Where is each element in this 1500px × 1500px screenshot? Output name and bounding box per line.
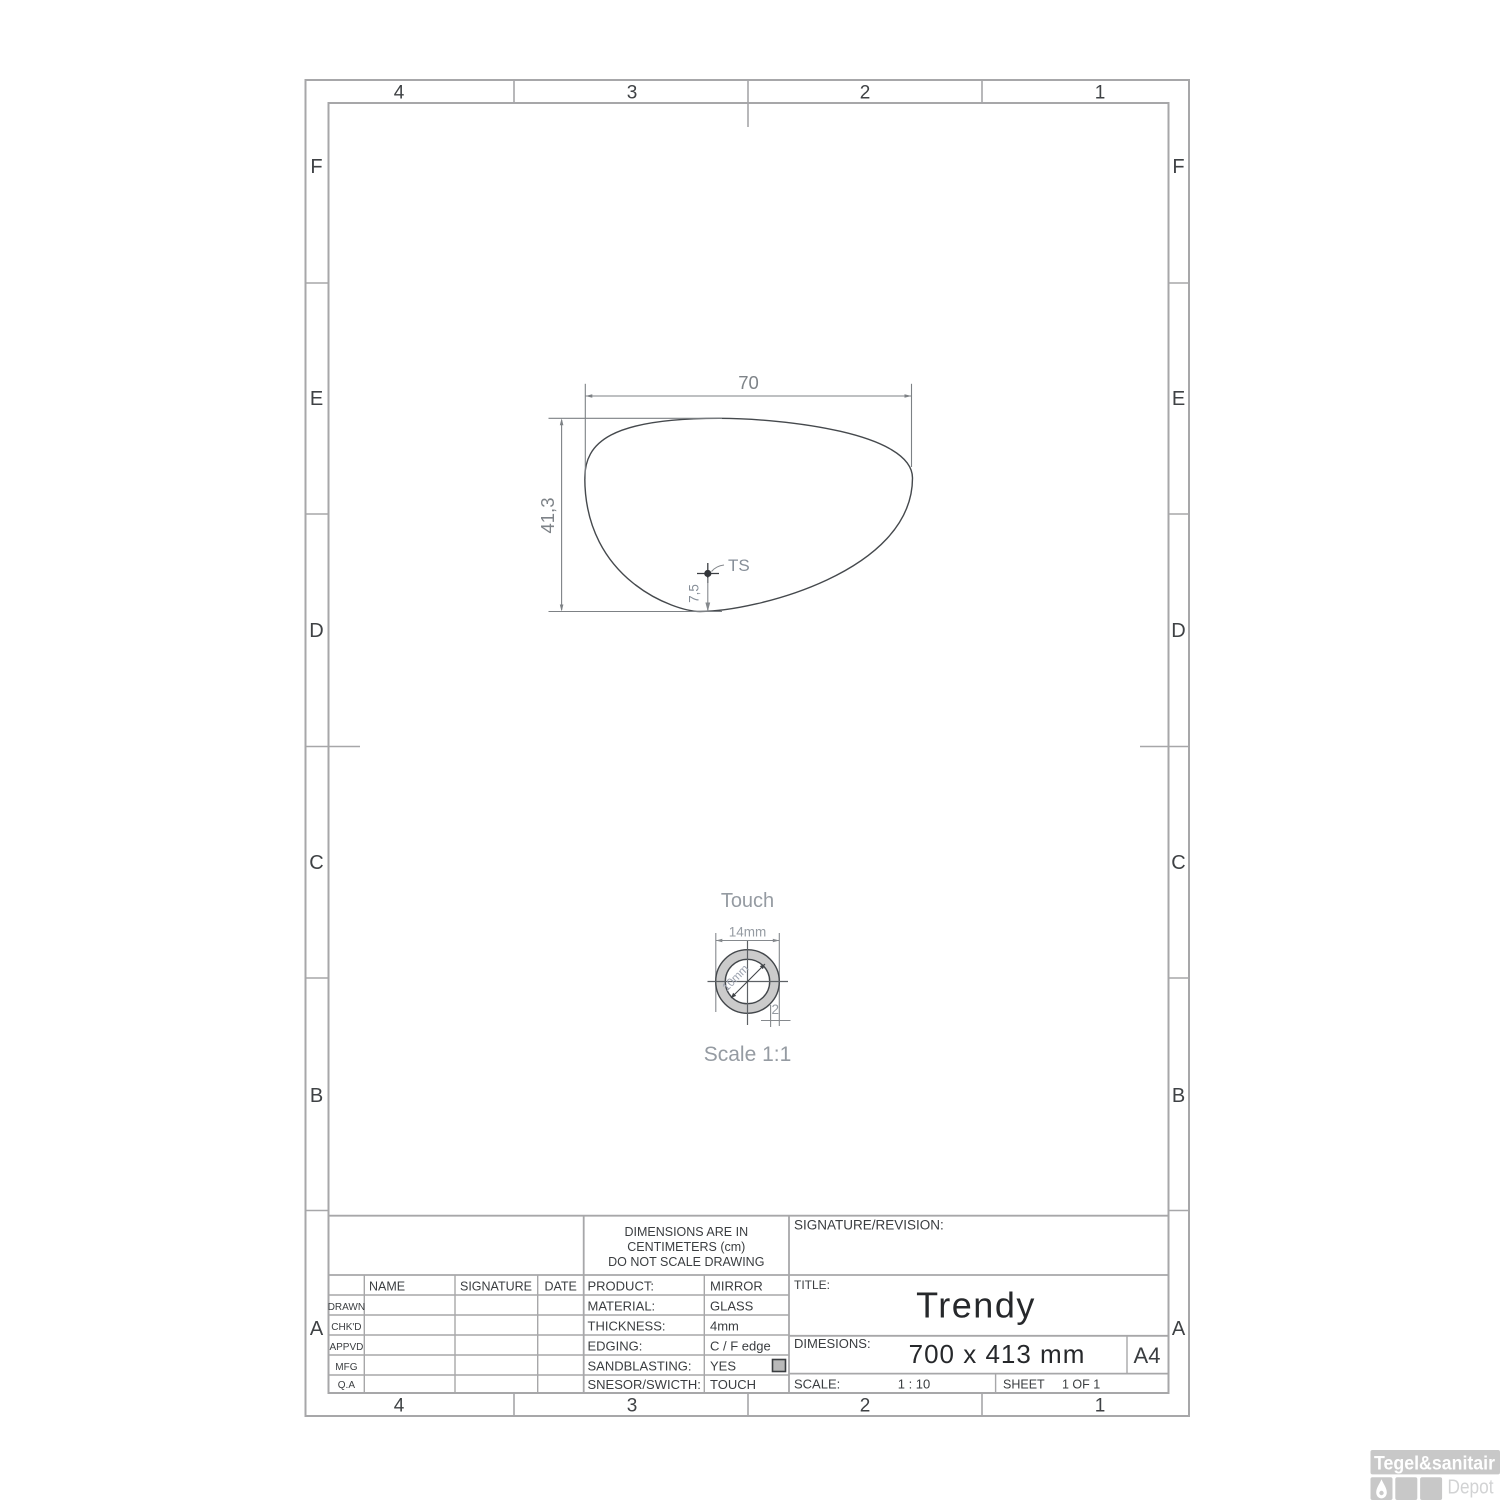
svg-text:F: F <box>1172 156 1184 178</box>
svg-text:Q.A: Q.A <box>338 1380 356 1391</box>
svg-text:TITLE:: TITLE: <box>794 1278 830 1292</box>
svg-text:7,5: 7,5 <box>687 584 702 603</box>
svg-text:SNESOR/SWICTH:: SNESOR/SWICTH: <box>588 1377 701 1392</box>
svg-text:1 OF 1: 1 OF 1 <box>1062 1378 1100 1392</box>
svg-text:C: C <box>309 852 323 874</box>
svg-text:TOUCH: TOUCH <box>710 1377 756 1392</box>
svg-text:C: C <box>1171 852 1185 874</box>
svg-text:B: B <box>310 1085 323 1107</box>
svg-text:DO NOT SCALE DRAWING: DO NOT SCALE DRAWING <box>608 1255 764 1269</box>
svg-text:SCALE:: SCALE: <box>794 1377 840 1392</box>
svg-text:YES: YES <box>710 1359 736 1374</box>
svg-text:D: D <box>1171 620 1185 642</box>
svg-text:MIRROR: MIRROR <box>710 1279 763 1294</box>
svg-text:1 : 10: 1 : 10 <box>898 1377 931 1392</box>
svg-text:GLASS: GLASS <box>710 1299 754 1314</box>
svg-text:THICKNESS:: THICKNESS: <box>588 1319 666 1334</box>
svg-text:SIGNATURE: SIGNATURE <box>460 1280 532 1294</box>
svg-text:CENTIMETERS (cm): CENTIMETERS (cm) <box>627 1240 745 1254</box>
svg-text:MATERIAL:: MATERIAL: <box>588 1299 656 1314</box>
svg-text:A: A <box>310 1318 324 1340</box>
svg-text:2: 2 <box>860 1396 871 1417</box>
svg-text:NAME: NAME <box>369 1280 405 1294</box>
svg-text:D: D <box>309 620 323 642</box>
svg-text:Trendy: Trendy <box>916 1285 1036 1326</box>
svg-text:DIMENSIONS ARE IN: DIMENSIONS ARE IN <box>624 1225 748 1239</box>
svg-text:1: 1 <box>1095 1396 1106 1417</box>
svg-text:Tegel&sanitair: Tegel&sanitair <box>1374 1454 1496 1475</box>
svg-text:A: A <box>1172 1318 1186 1340</box>
svg-text:Scale 1:1: Scale 1:1 <box>704 1043 792 1066</box>
svg-text:CHK'D: CHK'D <box>331 1322 361 1333</box>
svg-text:C / F edge: C / F edge <box>710 1339 771 1354</box>
svg-text:3: 3 <box>627 1396 638 1417</box>
svg-text:SIGNATURE/REVISION:: SIGNATURE/REVISION: <box>794 1218 944 1233</box>
svg-text:Touch: Touch <box>721 890 774 912</box>
svg-text:E: E <box>310 388 323 410</box>
svg-text:B: B <box>1172 1085 1185 1107</box>
svg-text:PRODUCT:: PRODUCT: <box>588 1279 654 1294</box>
svg-text:E: E <box>1172 388 1185 410</box>
svg-text:4: 4 <box>394 83 405 104</box>
svg-text:2: 2 <box>772 1002 780 1017</box>
svg-text:14mm: 14mm <box>729 925 767 940</box>
svg-text:MFG: MFG <box>335 1362 357 1373</box>
svg-text:41,3: 41,3 <box>537 497 558 533</box>
svg-text:700 x 413 mm: 700 x 413 mm <box>909 1339 1086 1369</box>
svg-text:Depot: Depot <box>1448 1477 1494 1499</box>
svg-text:70: 70 <box>738 372 759 393</box>
svg-text:DRAWN: DRAWN <box>328 1302 365 1313</box>
svg-text:F: F <box>310 156 322 178</box>
svg-text:1: 1 <box>1095 83 1106 104</box>
svg-text:EDGING:: EDGING: <box>588 1339 643 1354</box>
svg-text:4: 4 <box>394 1396 405 1417</box>
svg-text:DIMESIONS:: DIMESIONS: <box>794 1336 871 1351</box>
svg-text:SHEET: SHEET <box>1003 1378 1045 1392</box>
svg-text:A4: A4 <box>1134 1343 1161 1368</box>
svg-text:2: 2 <box>860 83 871 104</box>
svg-text:SANDBLASTING:: SANDBLASTING: <box>588 1359 692 1374</box>
svg-text:DATE: DATE <box>544 1280 576 1294</box>
svg-text:3: 3 <box>627 83 638 104</box>
svg-text:APPVD: APPVD <box>329 1342 363 1353</box>
svg-text:4mm: 4mm <box>710 1319 739 1334</box>
svg-text:TS: TS <box>728 556 750 575</box>
